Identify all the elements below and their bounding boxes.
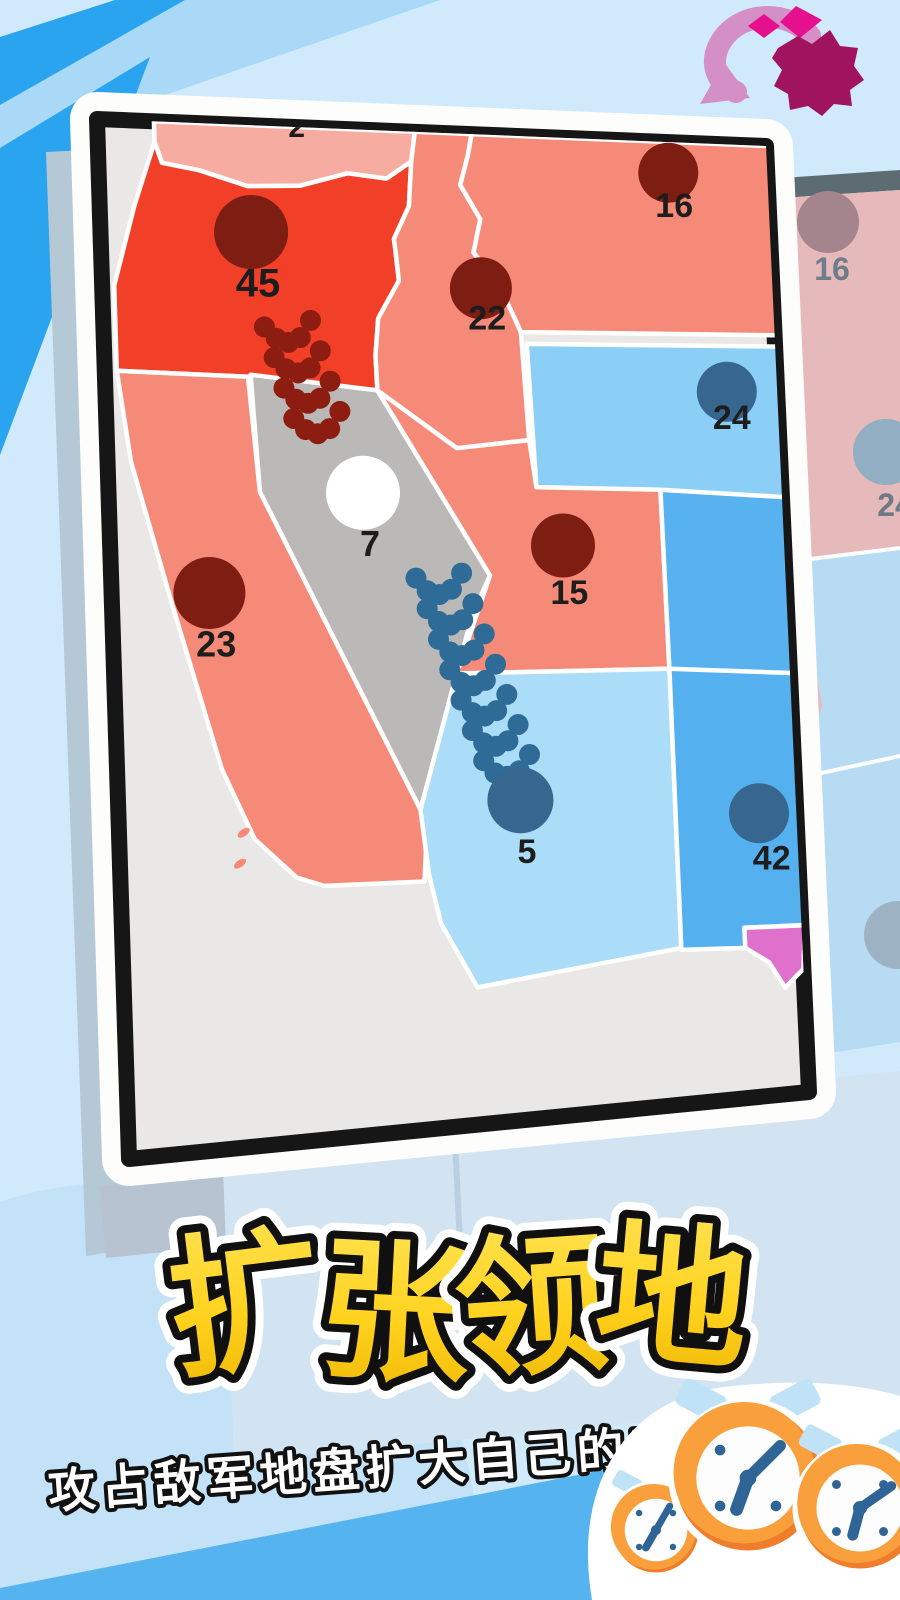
title-char: 领 xyxy=(450,1218,613,1398)
clock-tick xyxy=(715,1501,726,1512)
ghost-army-circle xyxy=(797,191,859,253)
red-army-trail-dot xyxy=(310,340,331,361)
scene: 1624 24522162471523542 扩扩张张领领地地 攻占敌军地盘扩大… xyxy=(0,0,900,1600)
clock-tick xyxy=(636,1510,642,1516)
clock-tick xyxy=(832,1527,841,1536)
blue-army-trail-dot xyxy=(451,563,472,584)
map-region-montana[interactable] xyxy=(460,134,788,335)
title-char: 地 xyxy=(589,1207,755,1390)
army-count-montana: 16 xyxy=(655,187,693,225)
red-army-trail-dot xyxy=(320,371,341,392)
army-count-idaho: 22 xyxy=(468,300,506,338)
blue-army-trail-dot xyxy=(519,744,540,765)
clock-tick xyxy=(771,1501,782,1512)
blue-army-trail-dot xyxy=(485,654,506,675)
blue-army-trail-dot xyxy=(508,714,529,735)
army-circle-oregon xyxy=(214,195,288,269)
clock-tick xyxy=(670,1544,676,1550)
map-region-arizona[interactable] xyxy=(421,669,682,988)
map-region-wyoming[interactable] xyxy=(527,344,796,498)
blue-army-trail-dot xyxy=(462,593,483,614)
red-army-trail-dot xyxy=(300,310,321,331)
ghost-army-count: 16 xyxy=(814,251,850,287)
clock-tick xyxy=(715,1445,726,1456)
army-circle-new-mexico xyxy=(729,783,789,843)
army-circle-nevada xyxy=(326,456,400,530)
clock-center xyxy=(651,1525,661,1535)
army-count-california: 23 xyxy=(196,624,236,665)
blue-army-trail-dot xyxy=(474,623,495,644)
title-char: 扩 xyxy=(160,1211,332,1398)
clock-center xyxy=(853,1501,867,1515)
page-title: 扩扩张张领领地地 xyxy=(160,1207,756,1403)
red-army-trail-dot xyxy=(329,401,350,422)
army-count-oregon: 45 xyxy=(236,261,281,305)
clock-tick xyxy=(636,1544,642,1550)
clock-tick xyxy=(879,1527,888,1536)
army-circle-utah xyxy=(531,514,595,578)
army-count-nevada: 7 xyxy=(360,523,380,564)
army-circle-california xyxy=(173,557,245,629)
clock-tick xyxy=(832,1480,841,1489)
army-circle-arizona xyxy=(487,767,553,833)
map-region-colorado[interactable] xyxy=(660,490,803,674)
army-count-wyoming: 24 xyxy=(713,399,751,437)
army-count-arizona: 5 xyxy=(518,833,537,871)
army-count-new-mexico: 42 xyxy=(753,840,791,878)
alarm-clock-icon xyxy=(796,1423,900,1572)
map-card: 24522162471523542 xyxy=(97,111,815,1159)
ghost-army-count: 24 xyxy=(877,487,900,523)
blue-army-trail-dot xyxy=(496,684,517,705)
clock-center xyxy=(740,1470,757,1487)
army-count-utah: 15 xyxy=(550,574,588,612)
game-promo-screen: 1624 24522162471523542 扩扩张张领领地地 攻占敌军地盘扩大… xyxy=(0,0,900,1600)
